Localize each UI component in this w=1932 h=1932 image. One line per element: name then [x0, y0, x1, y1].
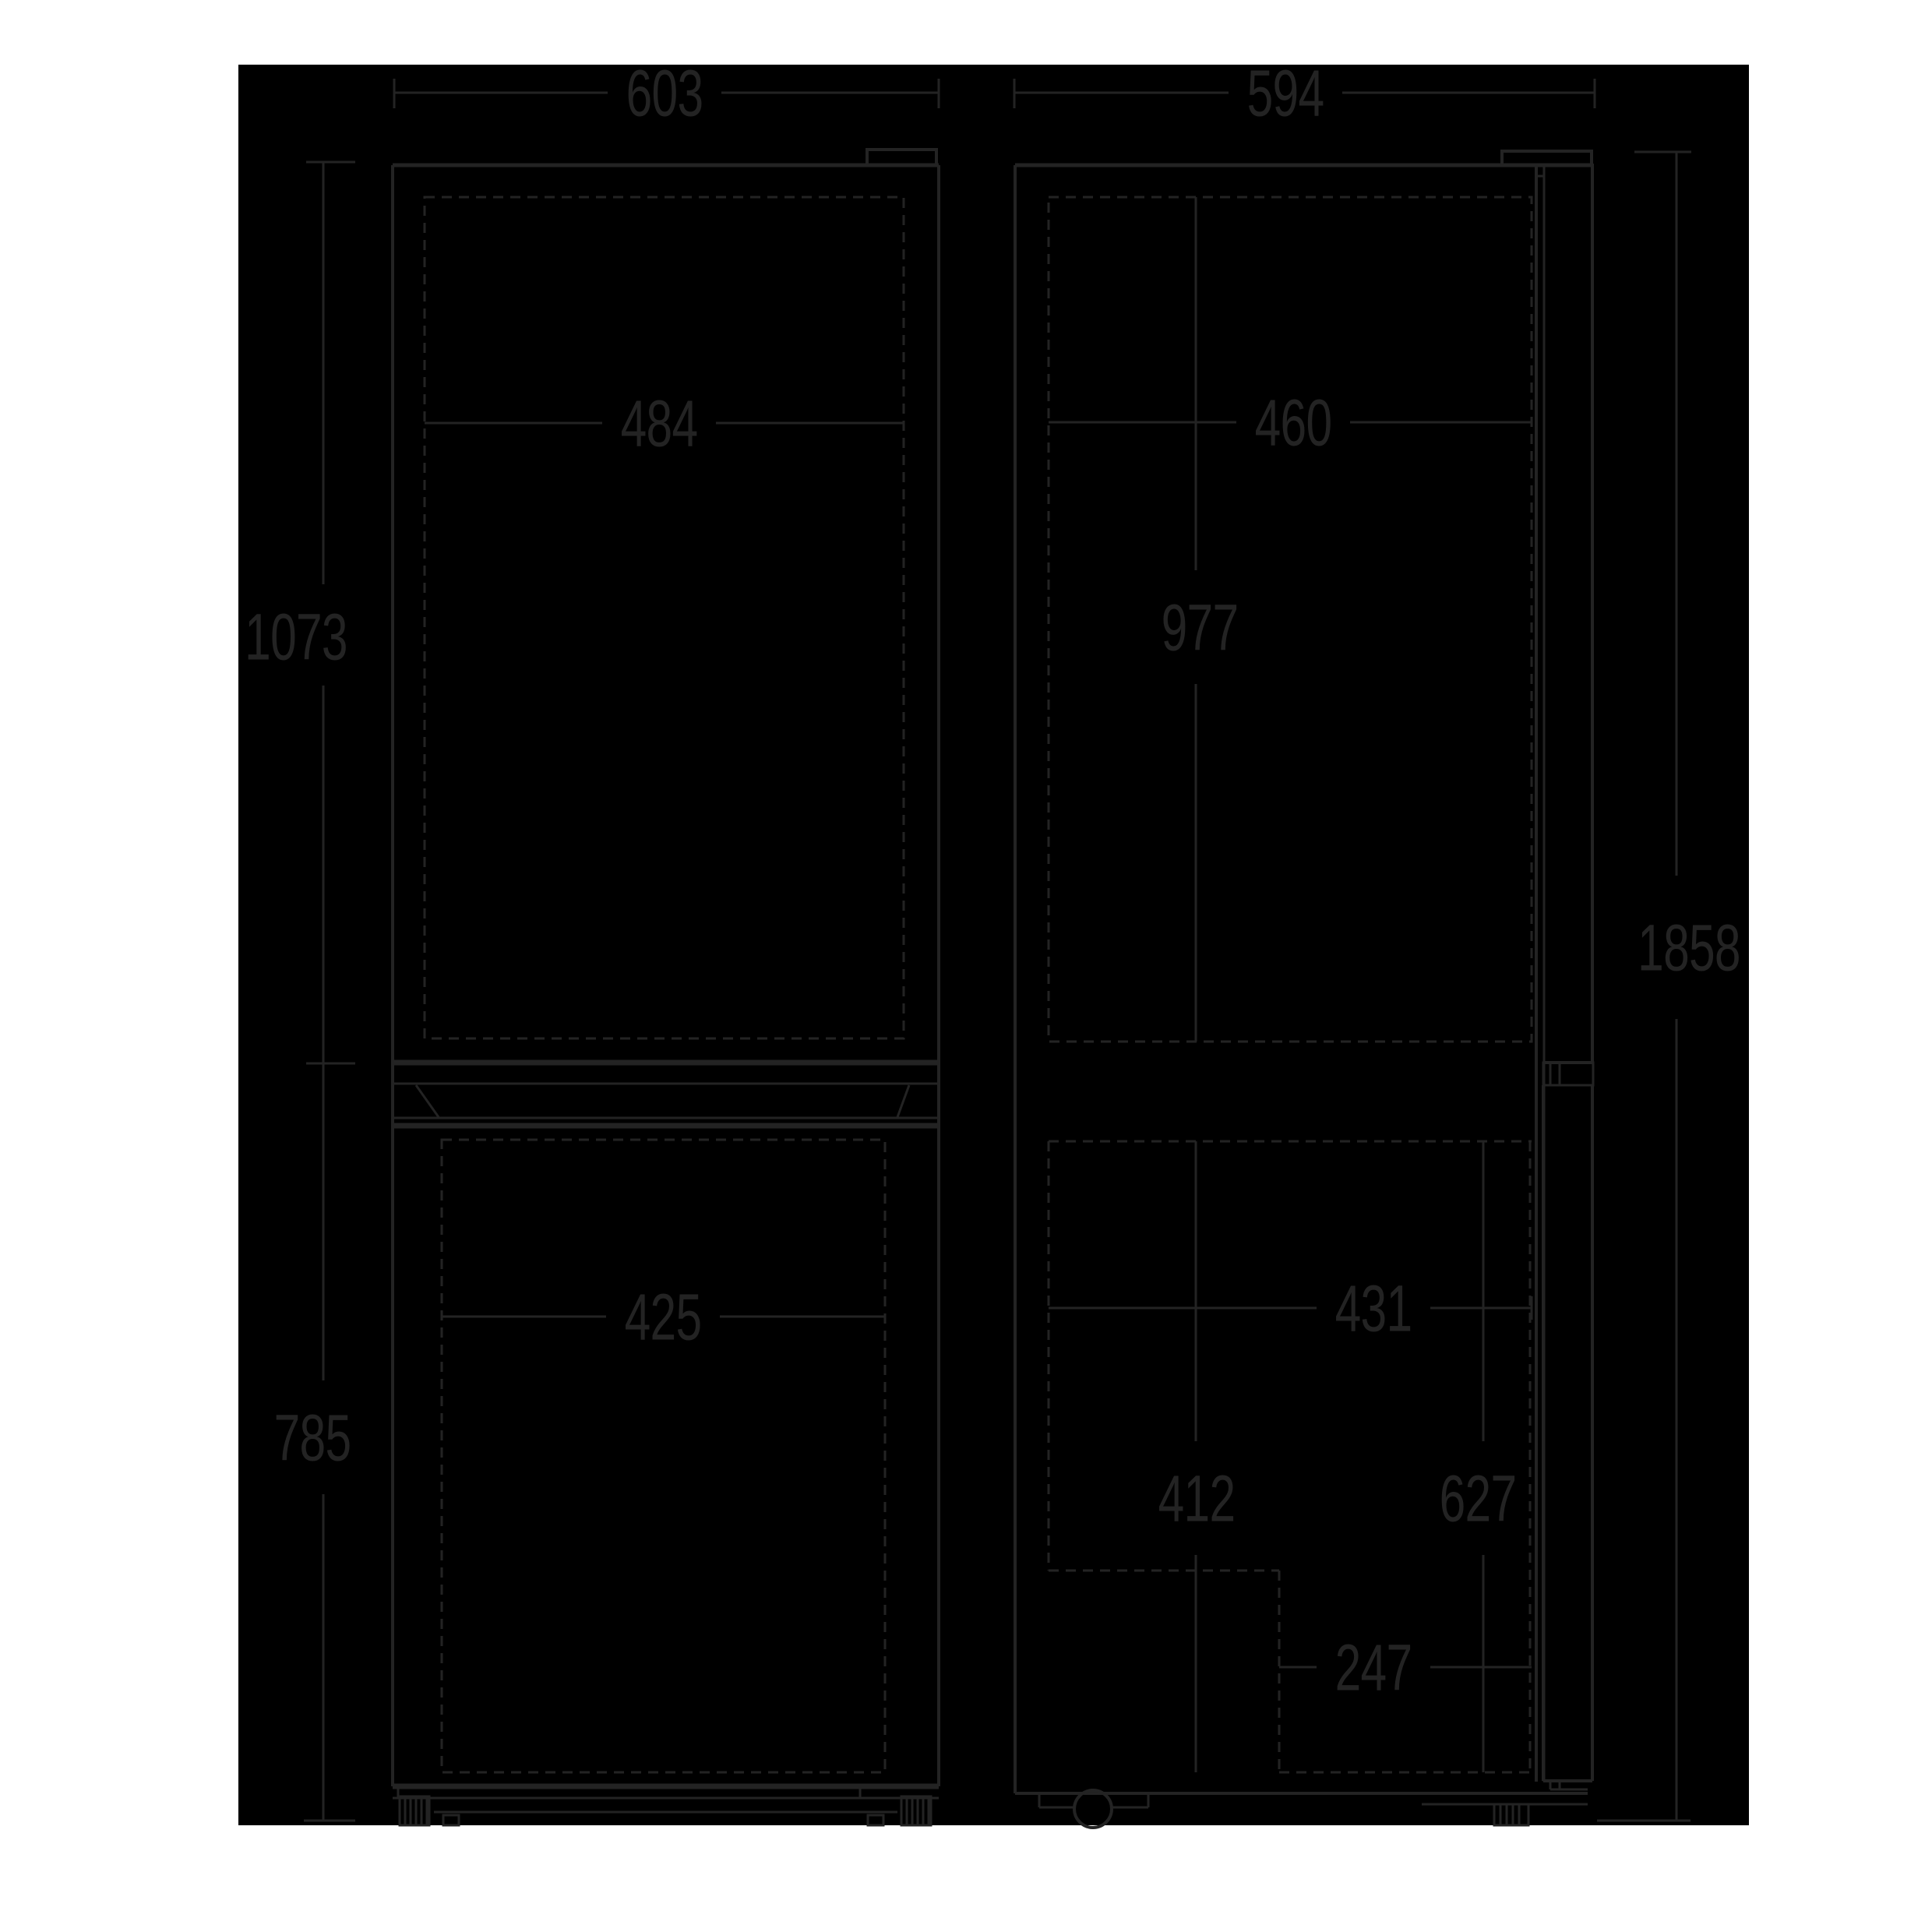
- fridge-dimension-diagram: 603 484 1073 425 785 594 460 977 1858 43…: [0, 0, 1932, 1932]
- dim-label-front-lower-inner-width: 425: [625, 1281, 702, 1354]
- dim-label-front-lower-height: 785: [274, 1401, 351, 1475]
- dim-label-front-upper-inner-width: 484: [621, 387, 698, 460]
- dim-label-side-lower-inner-height: 412: [1158, 1462, 1236, 1535]
- dim-label-side-lower-inner-depth: 431: [1335, 1272, 1412, 1345]
- dim-label-side-upper-inner-depth: 460: [1255, 386, 1332, 460]
- fridge-dimension-diagram-page: 603 484 1073 425 785 594 460 977 1858 43…: [0, 0, 1932, 1932]
- dim-label-side-compressor-recess: 247: [1335, 1631, 1412, 1705]
- dim-label-side-upper-inner-height: 977: [1162, 591, 1239, 665]
- drawing-canvas: [238, 65, 1749, 1825]
- dim-label-side-lower-depth-to-door: 627: [1440, 1462, 1517, 1535]
- dim-label-front-upper-height: 1073: [245, 601, 347, 674]
- dim-label-side-overall-height: 1858: [1638, 911, 1740, 985]
- dim-label-front-width: 603: [626, 57, 703, 130]
- dim-label-side-depth: 594: [1247, 57, 1324, 130]
